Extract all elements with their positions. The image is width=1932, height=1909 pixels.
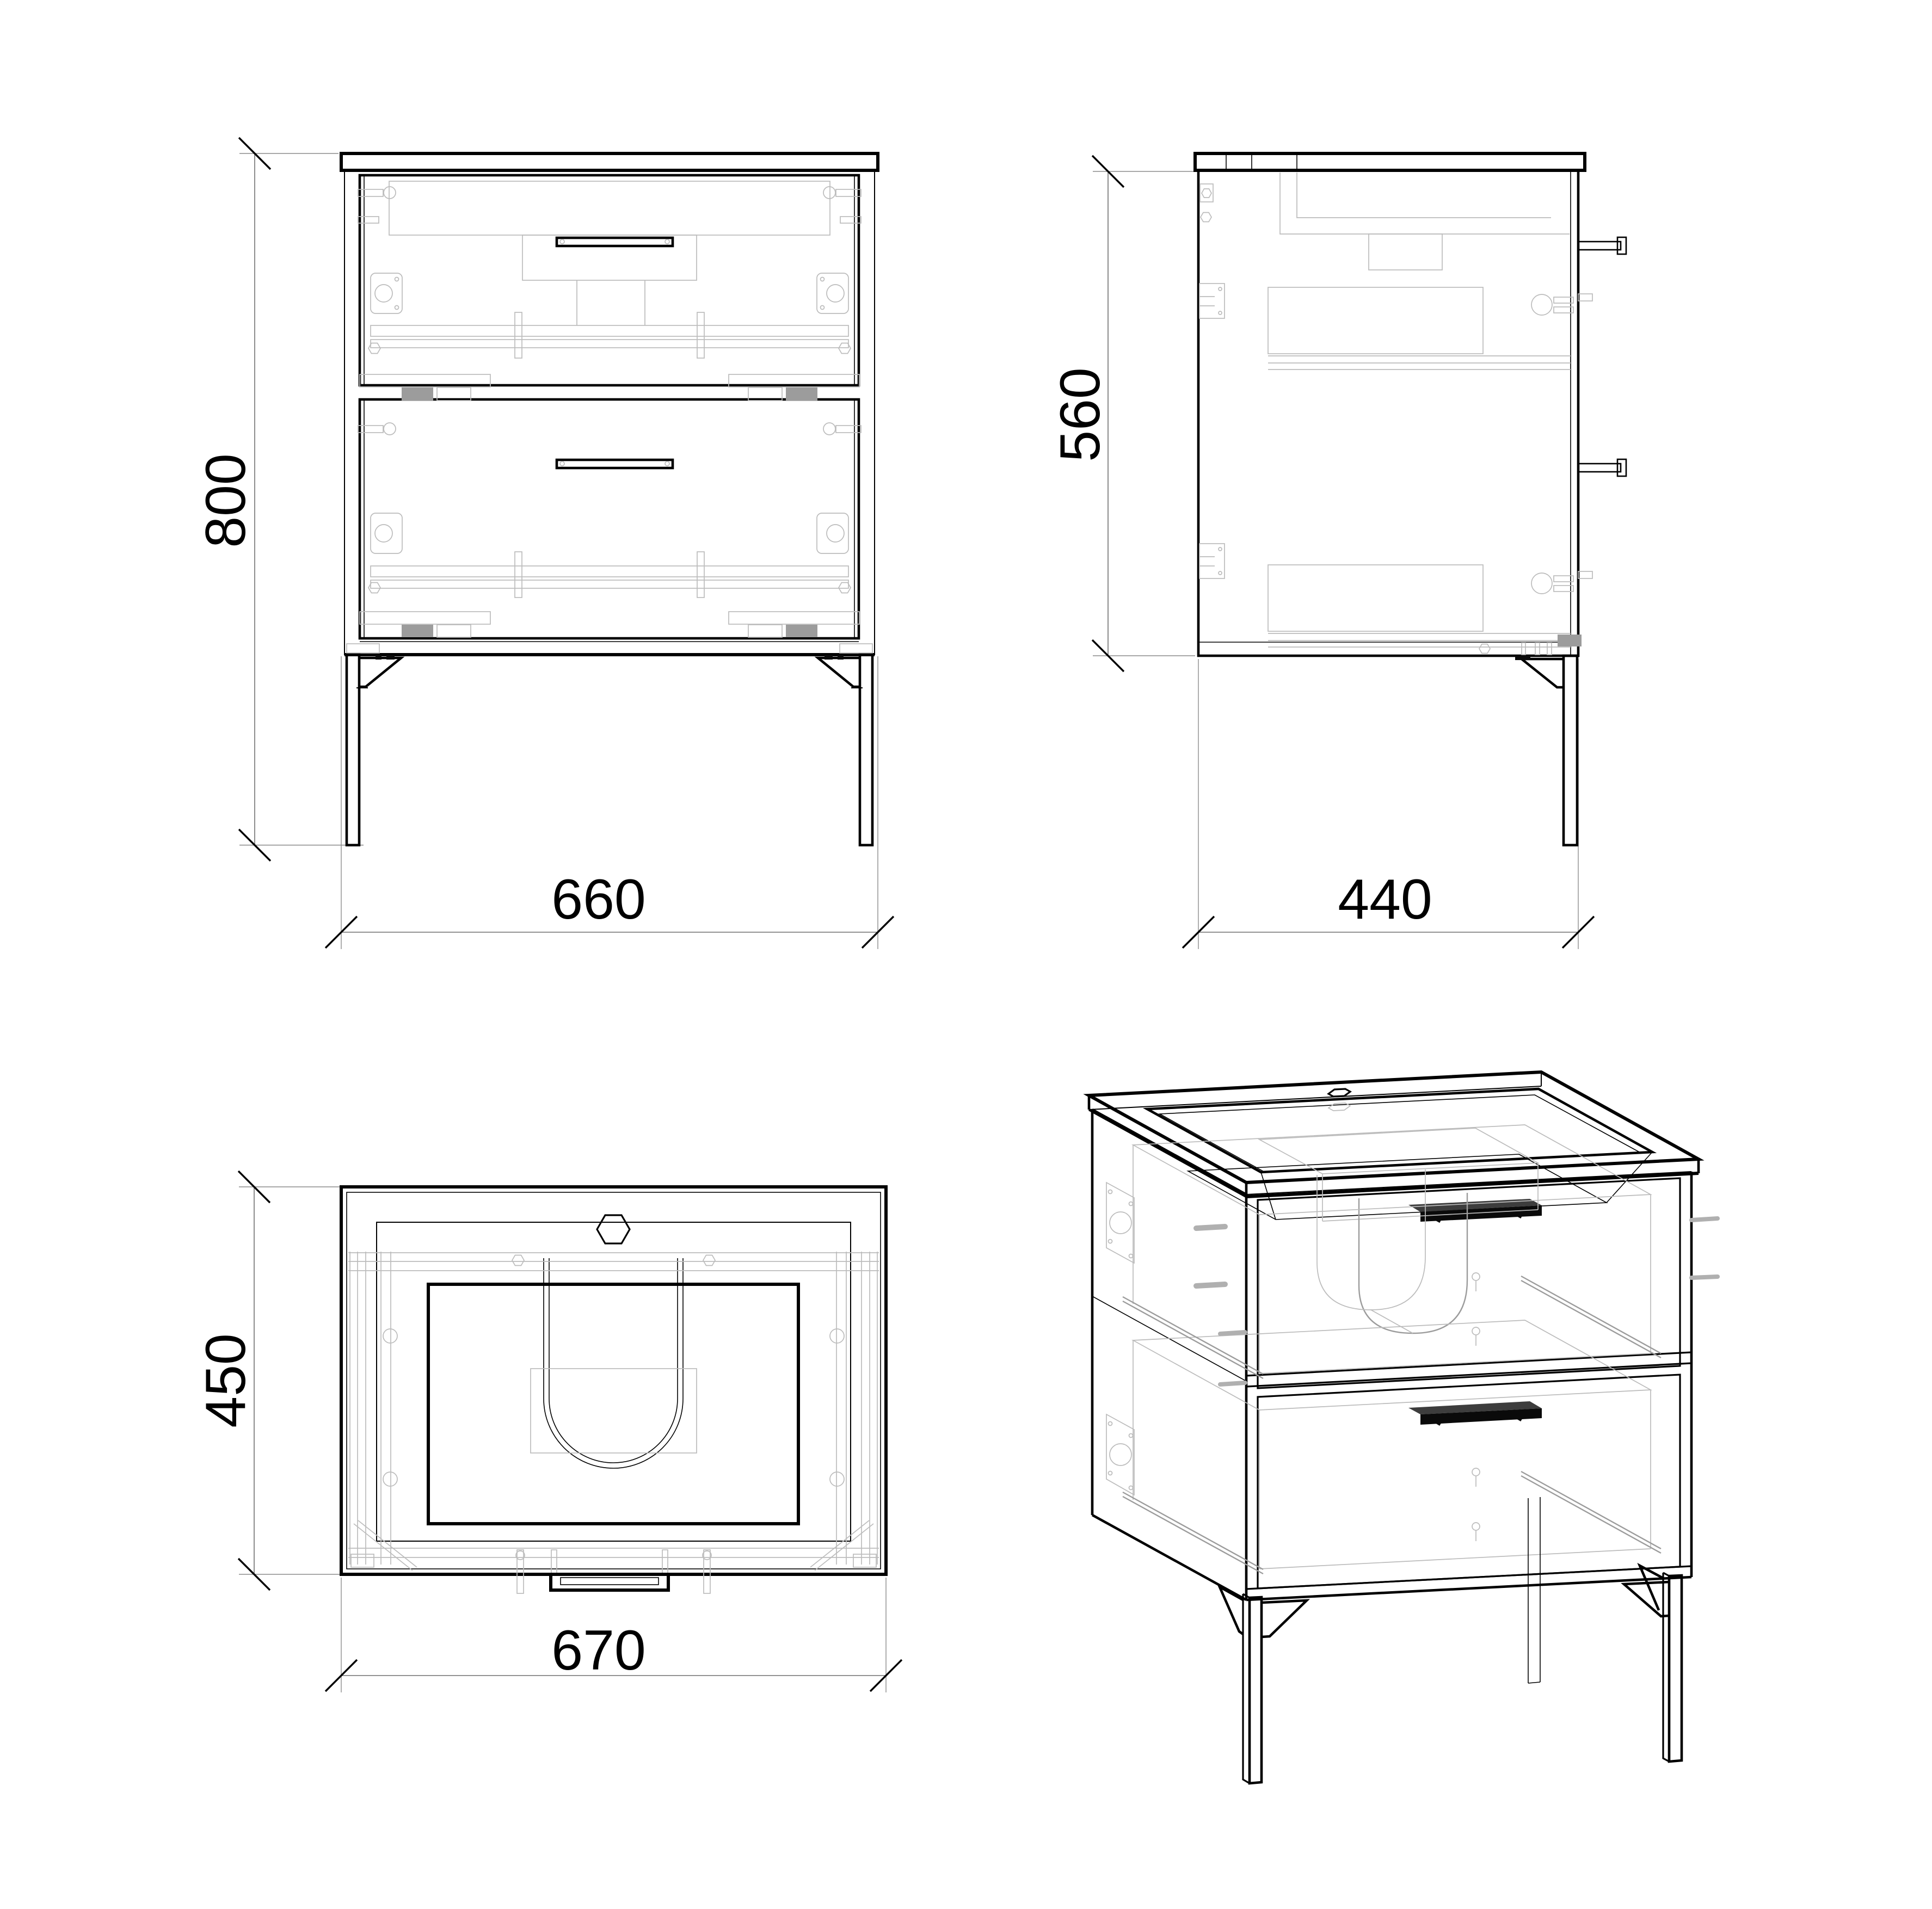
iso-legs	[1220, 1497, 1682, 1783]
top-view: 450 670	[194, 1171, 902, 1692]
top-sink-basin	[428, 1284, 798, 1524]
drawing-canvas: 800 660	[0, 0, 1932, 1909]
top-width-label: 670	[551, 1619, 646, 1682]
top-countertop-outline	[341, 1187, 886, 1574]
side-height-label: 560	[1049, 367, 1112, 462]
iso-handles	[1408, 1199, 1542, 1425]
top-depth-label: 450	[194, 1333, 257, 1428]
side-height-dimension: 560	[1049, 156, 1195, 672]
isometric-view	[1089, 1072, 1718, 1783]
side-upper-handle	[1578, 242, 1621, 250]
front-lower-drawer-handle	[557, 460, 673, 468]
side-lower-handle	[1578, 464, 1621, 472]
side-handles	[1578, 237, 1626, 476]
top-sink-rim	[377, 1222, 851, 1541]
front-width-dimension: 660	[325, 656, 894, 949]
iso-faucet-hole	[1328, 1089, 1350, 1097]
vanity-technical-drawing: 800 660	[0, 0, 1932, 1909]
front-lower-drawer	[360, 399, 859, 638]
front-height-label: 800	[194, 453, 257, 548]
top-width-dimension: 670	[325, 1578, 902, 1692]
side-internal-hardware	[1199, 173, 1592, 655]
iso-carcass	[1092, 1110, 1691, 1600]
front-carcass	[344, 170, 875, 655]
side-leg	[1515, 656, 1577, 845]
top-drawer-handle	[551, 1550, 668, 1590]
top-depth-dimension: 450	[194, 1171, 341, 1590]
front-width-label: 660	[551, 868, 646, 931]
side-carcass	[1198, 170, 1578, 656]
side-countertop	[1195, 153, 1585, 170]
front-view: 800 660	[194, 138, 894, 949]
top-overflow-curve	[544, 1258, 683, 1468]
front-upper-drawer-handle	[557, 238, 673, 246]
side-view: 560 440	[1049, 153, 1626, 949]
front-height-dimension: 800	[194, 138, 364, 861]
side-depth-label: 440	[1338, 868, 1432, 931]
front-countertop	[341, 153, 878, 170]
front-legs	[347, 655, 872, 845]
front-internal-hardware	[347, 181, 872, 653]
top-faucet-hole	[597, 1215, 630, 1243]
iso-countertop	[1089, 1072, 1699, 1220]
side-depth-dimension: 440	[1183, 659, 1594, 949]
